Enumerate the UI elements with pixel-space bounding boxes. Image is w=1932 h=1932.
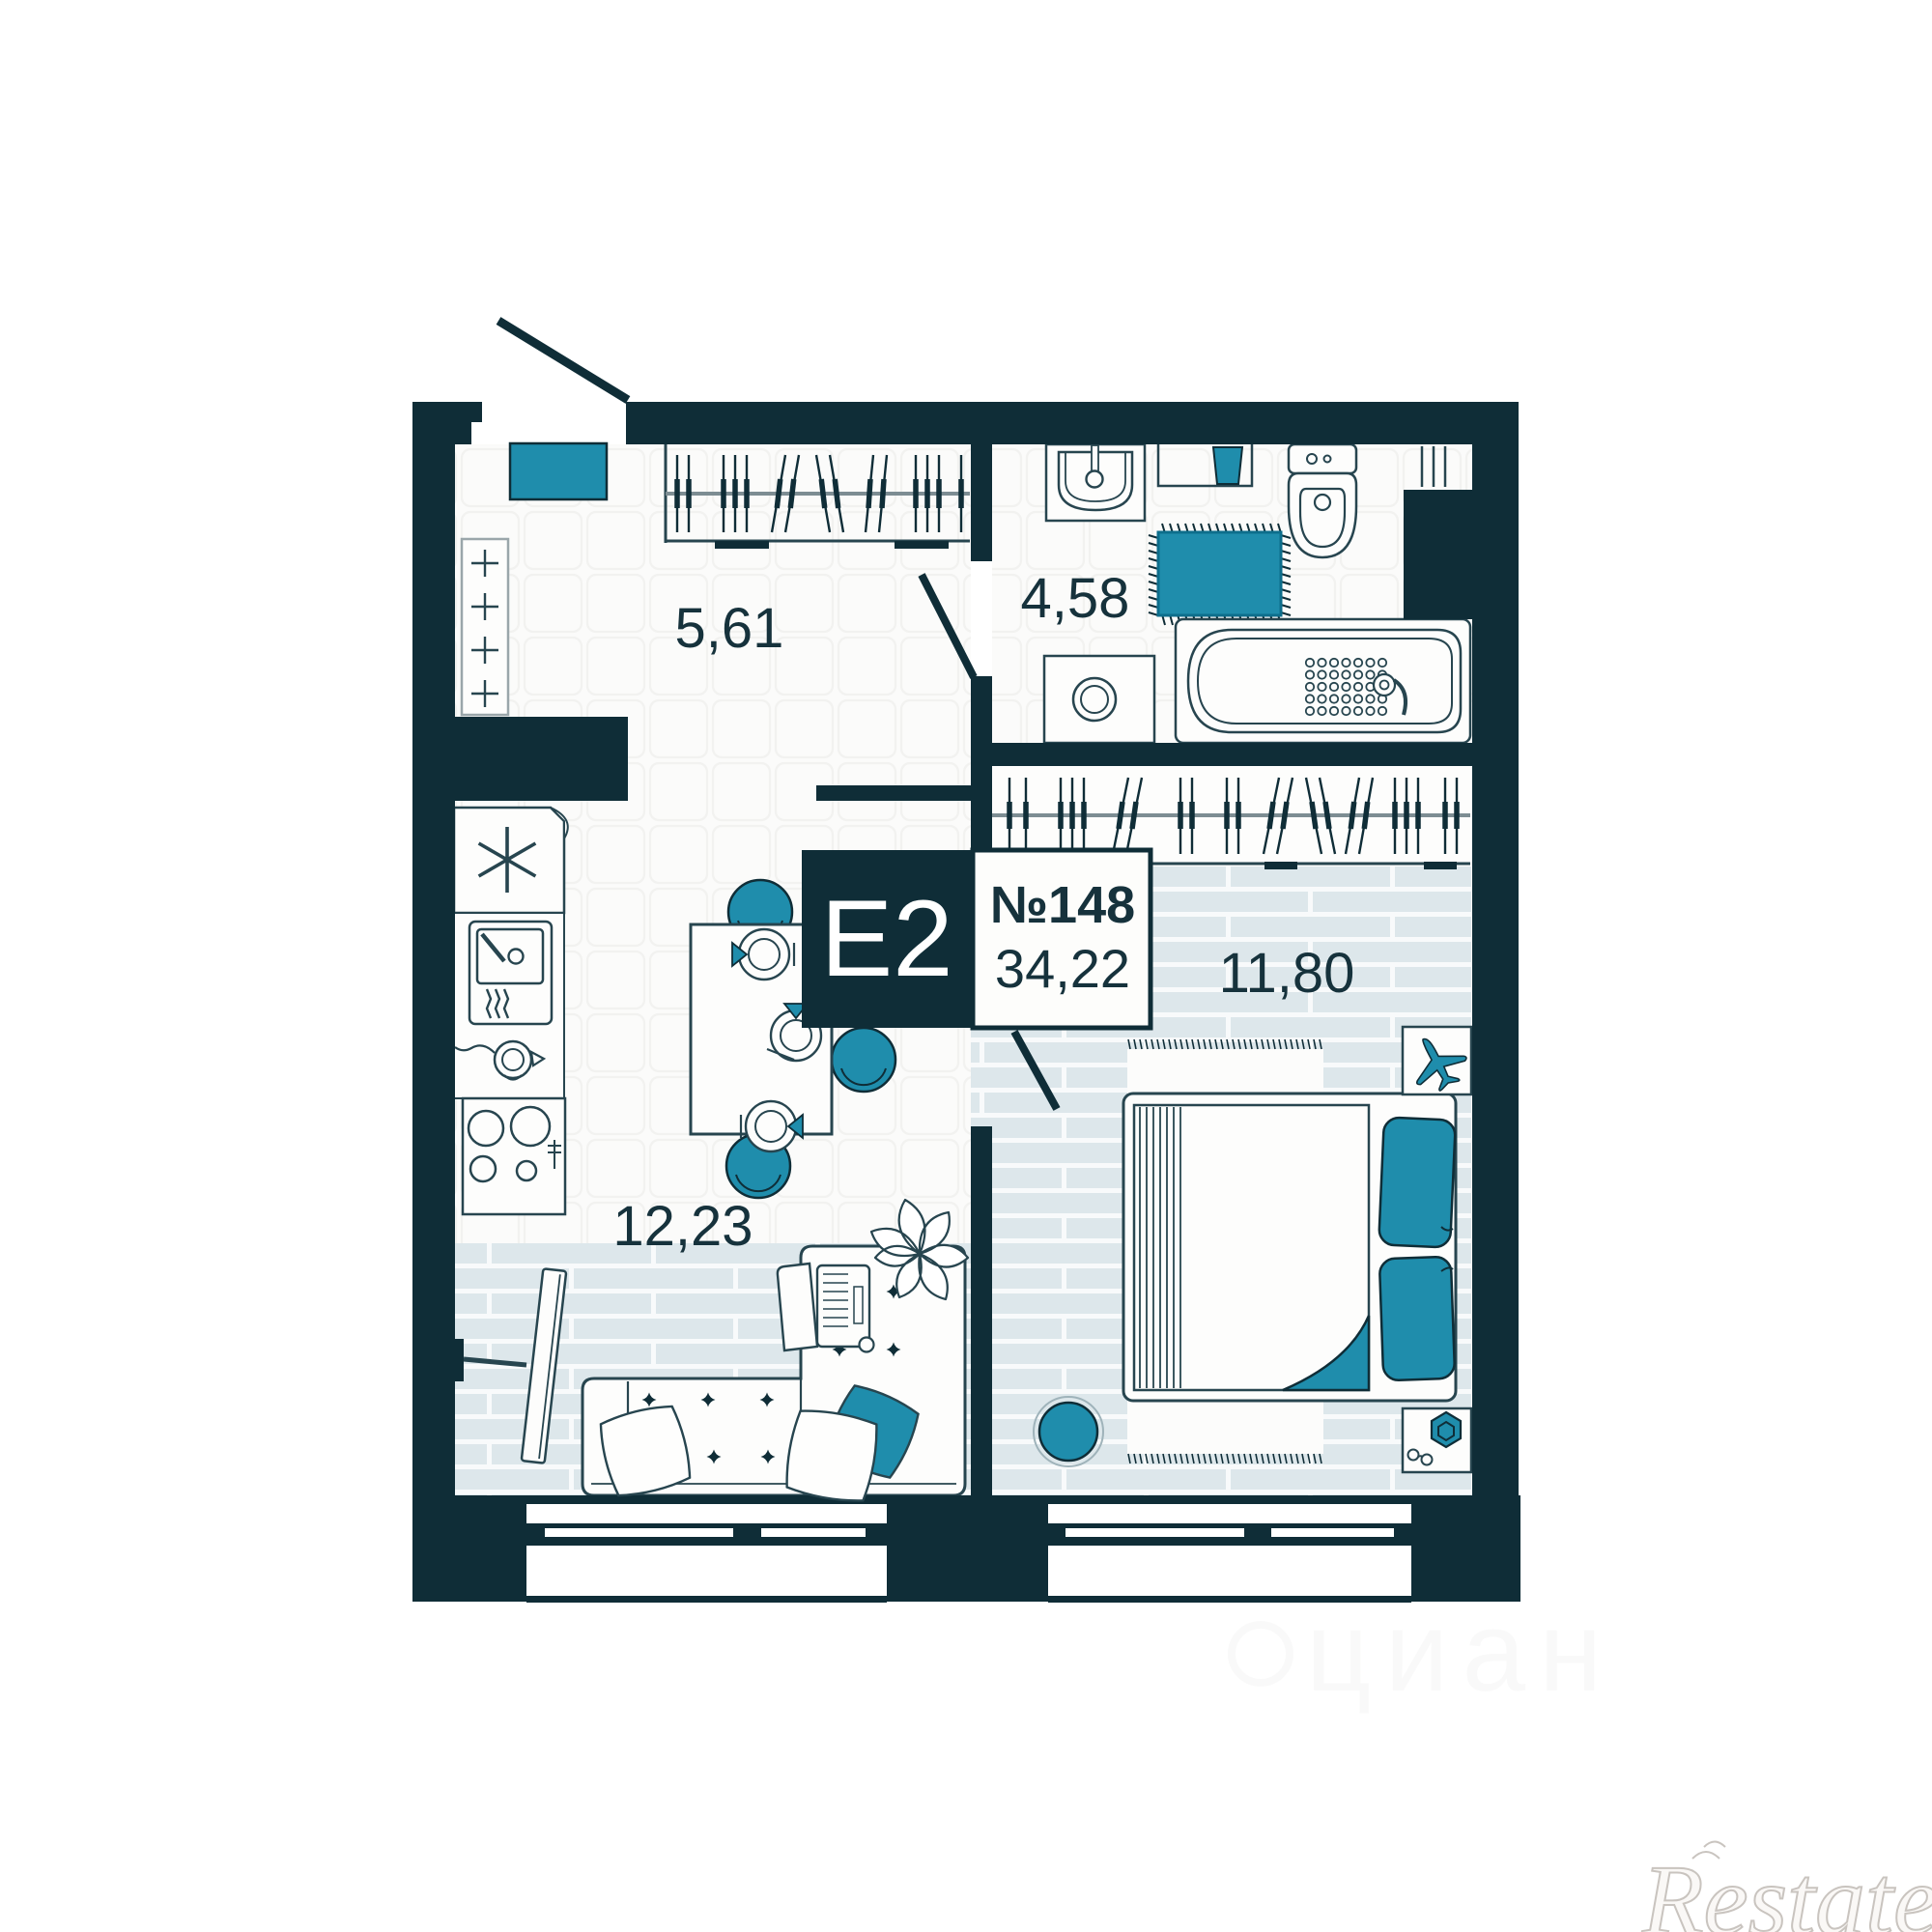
svg-text:12,23: 12,23 — [612, 1195, 753, 1258]
svg-text:циан: циан — [1306, 1588, 1615, 1716]
svg-text:E2: E2 — [821, 878, 953, 999]
svg-text:11,80: 11,80 — [1219, 942, 1355, 1005]
svg-text:4,58: 4,58 — [1021, 567, 1130, 630]
svg-text:5,61: 5,61 — [675, 597, 784, 660]
svg-text:34,22: 34,22 — [995, 938, 1130, 999]
svg-text:№148: №148 — [990, 876, 1135, 934]
svg-text:Restate: Restate — [1641, 1845, 1932, 1932]
